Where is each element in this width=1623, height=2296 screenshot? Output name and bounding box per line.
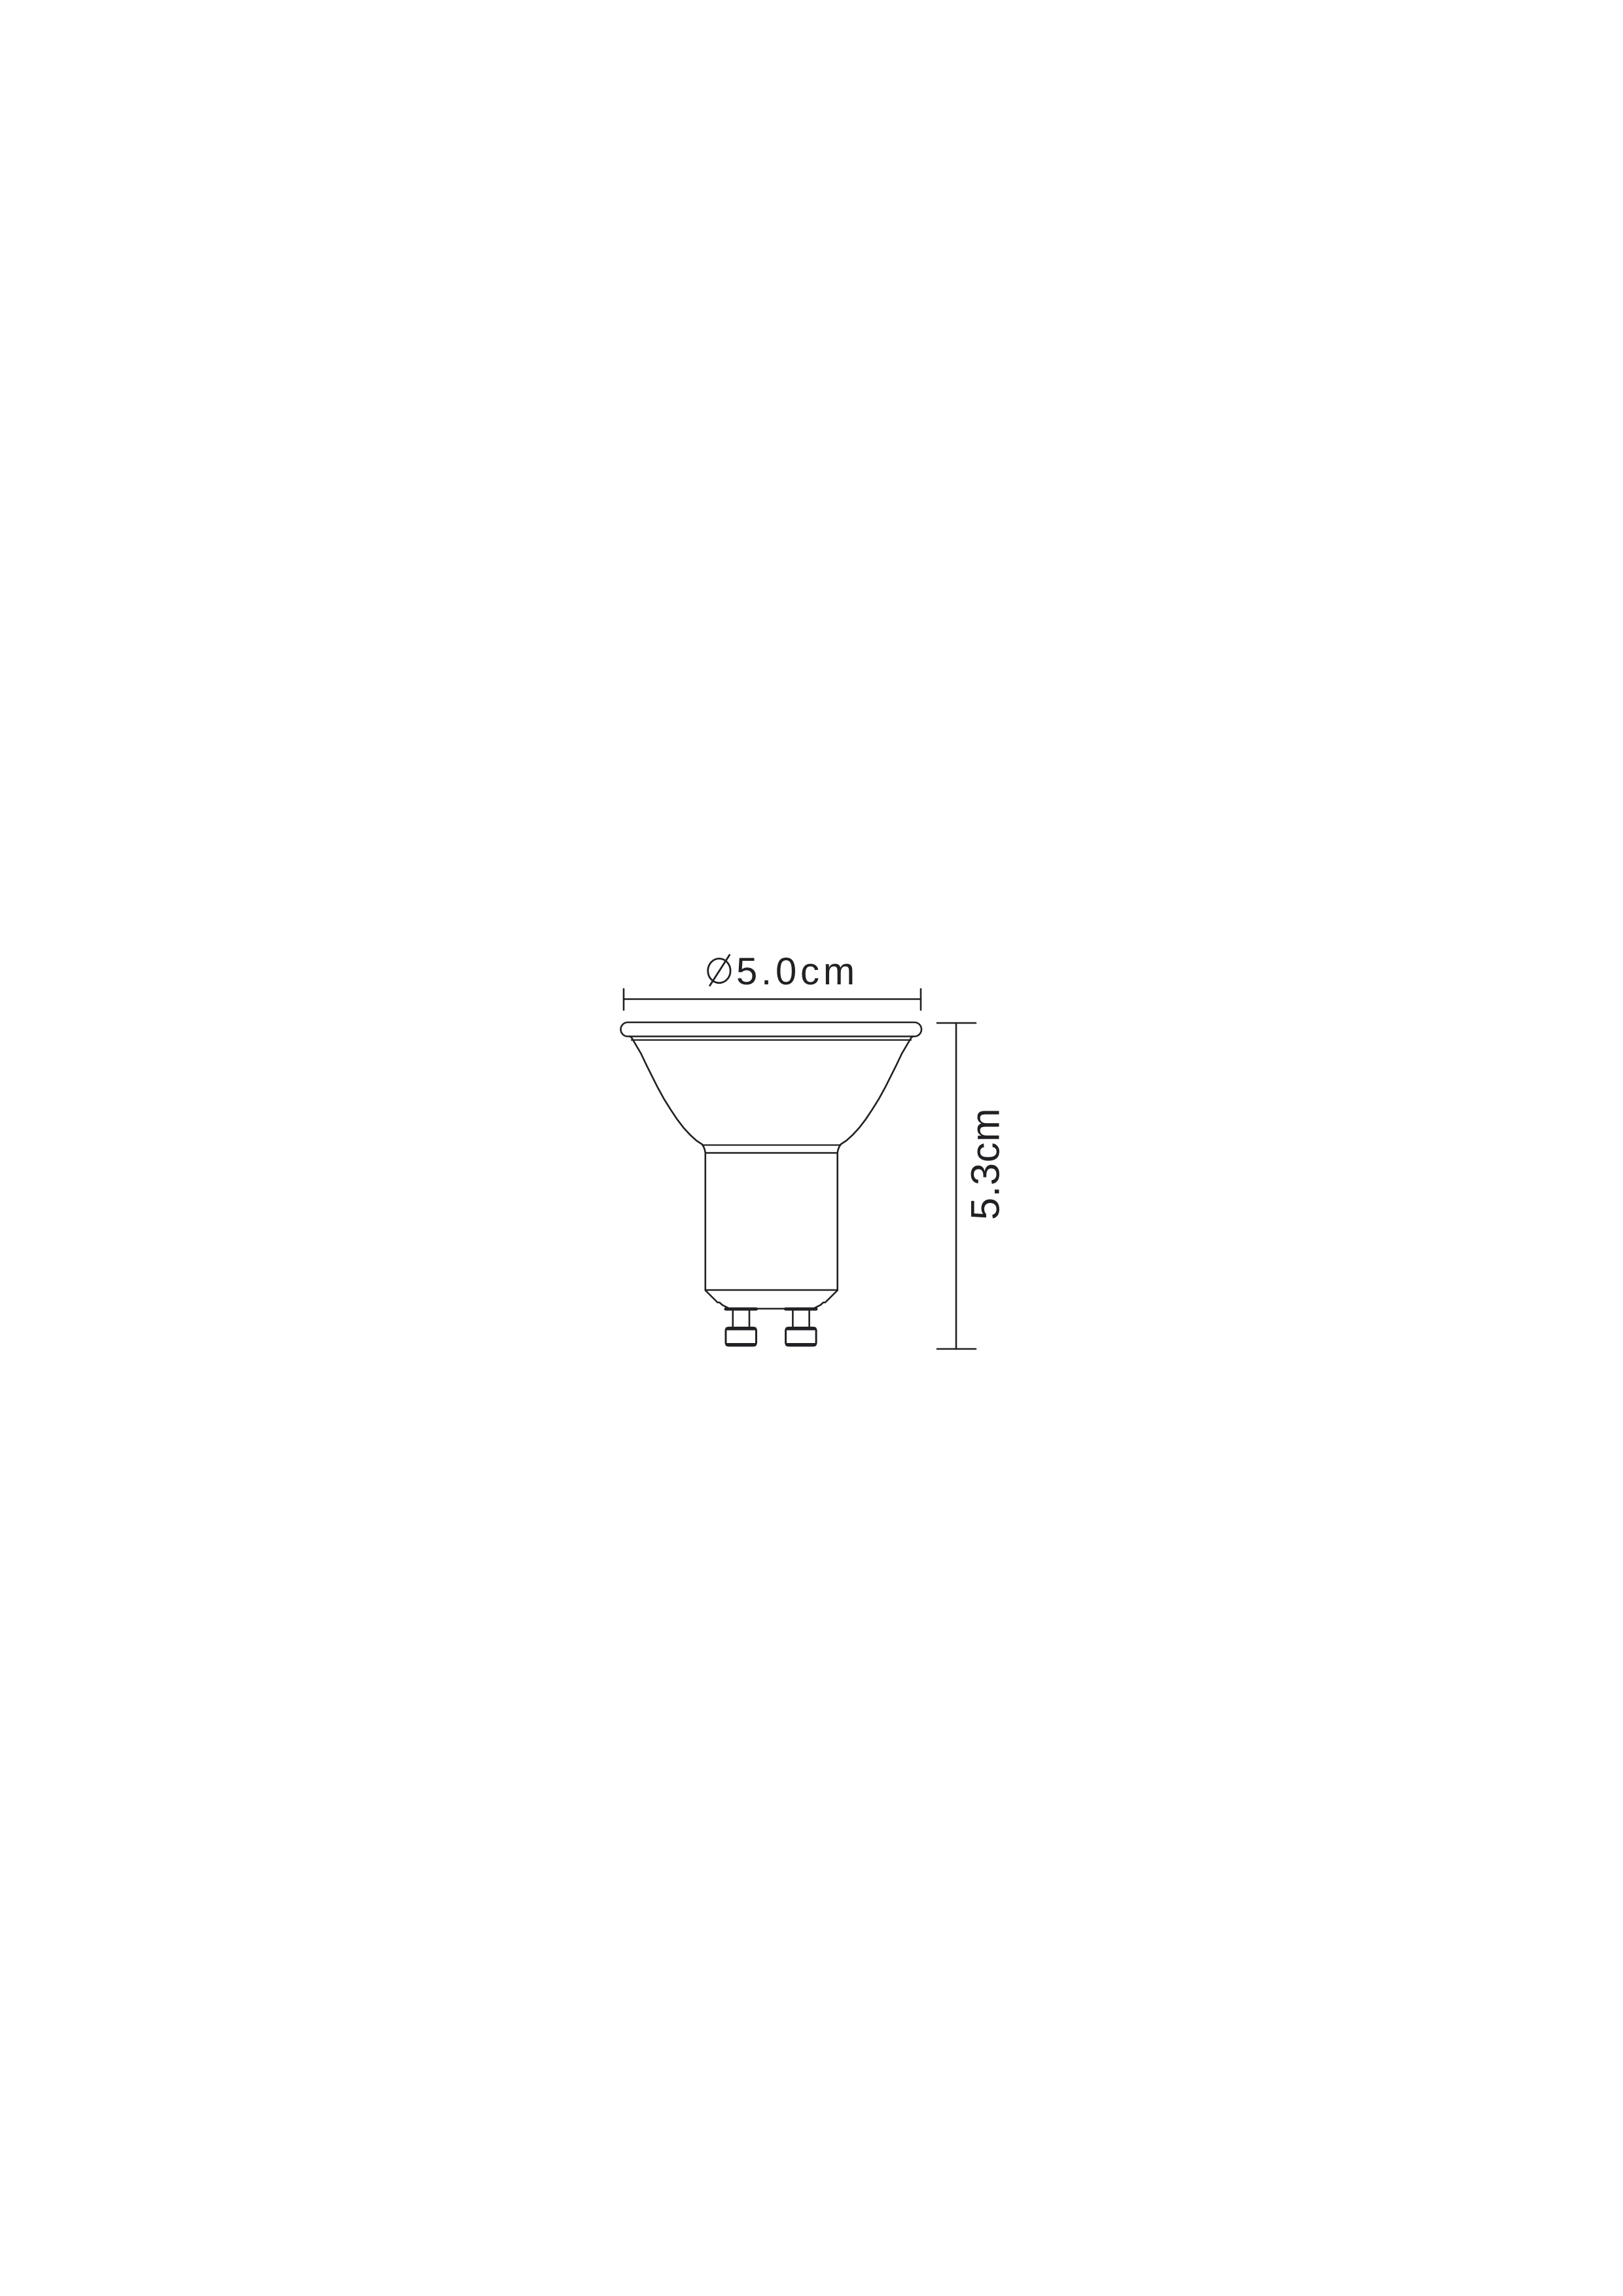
svg-text:5.3cm: 5.3cm bbox=[963, 1108, 1008, 1220]
svg-text:5.0cm: 5.0cm bbox=[736, 950, 859, 993]
